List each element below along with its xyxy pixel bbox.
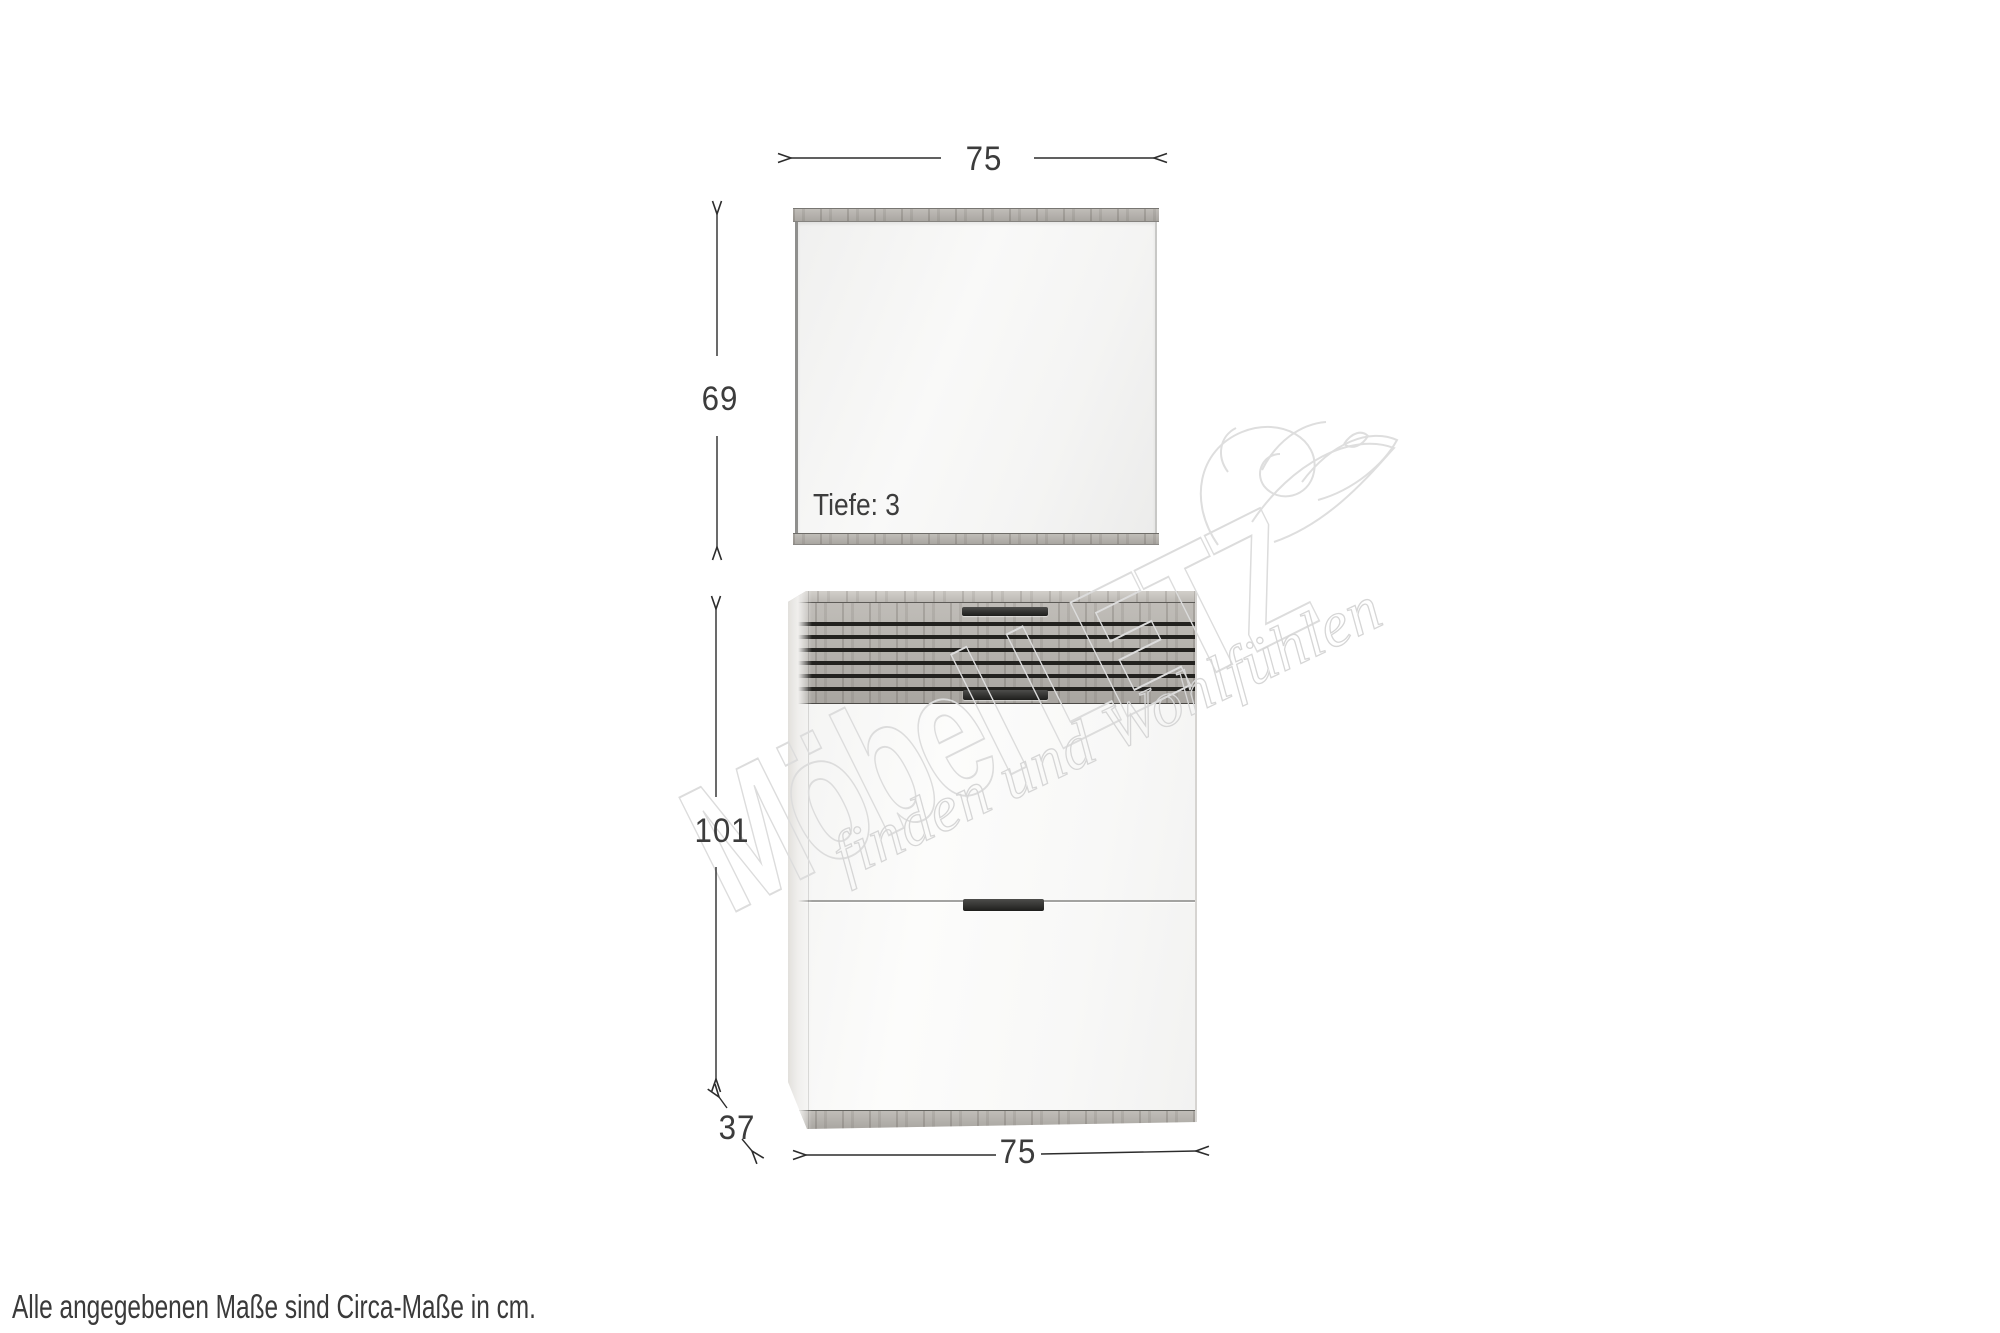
dimension-label-mirror-width: 75 bbox=[947, 139, 1021, 179]
dim-cabinet-depth-upper bbox=[719, 1097, 727, 1108]
dimension-label-cabinet-width: 75 bbox=[981, 1132, 1055, 1172]
cabinet-handle-bottom bbox=[963, 899, 1044, 911]
mirror-depth-label: Tiefe: 3 bbox=[813, 487, 900, 523]
dimension-label-cabinet-height: 101 bbox=[681, 811, 764, 851]
measurements-note: Alle angegebenen Maße sind Circa-Maße in… bbox=[12, 1288, 536, 1326]
cabinet-bottom-edge bbox=[788, 1110, 1197, 1129]
mirror-glass: Tiefe: 3 bbox=[795, 222, 1157, 533]
dimension-label-mirror-height: 69 bbox=[683, 379, 757, 419]
furniture-dimension-diagram: Tiefe: 3 Möbel LETZ finden und Wohlfühle… bbox=[0, 0, 2000, 1333]
wall-mirror: Tiefe: 3 bbox=[793, 208, 1159, 545]
dimension-label-cabinet-depth: 37 bbox=[700, 1108, 774, 1148]
dim-cabinet-width-right bbox=[1041, 1151, 1196, 1154]
mirror-top-frame bbox=[793, 208, 1159, 222]
